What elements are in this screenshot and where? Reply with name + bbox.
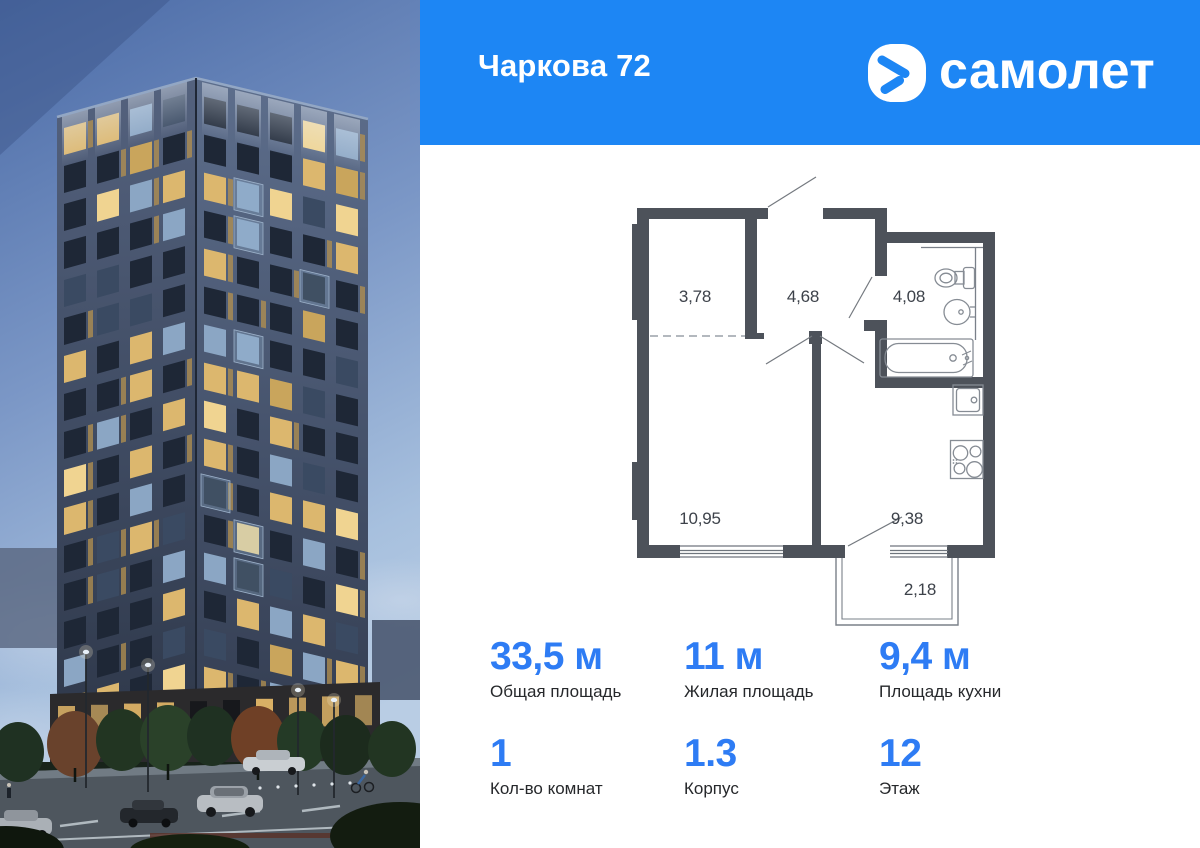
stat-label: Жилая площадь — [684, 682, 874, 702]
page: Чаркова 72 самолет — [0, 0, 1200, 848]
stat-value: 1 — [490, 731, 680, 777]
stat-label: Корпус — [684, 779, 874, 799]
stat-label: Этаж — [879, 779, 1069, 799]
header: Чаркова 72 самолет — [420, 0, 1200, 145]
samolet-logo-icon — [868, 44, 926, 102]
stat-label: Кол-во комнат — [490, 779, 680, 799]
room-area-label: 2,18 — [904, 580, 936, 599]
room-area-label: 3,78 — [679, 287, 711, 306]
stat-label: Общая площадь — [490, 682, 680, 702]
balcony-outline — [836, 558, 958, 625]
kitchen-fixtures — [951, 385, 984, 479]
page-title: Чаркова 72 — [478, 48, 651, 84]
stat-rooms-count: 1 Кол-во комнат — [490, 731, 680, 799]
stat-kitchen-area: 9,4 м Площадь кухни — [879, 634, 1069, 702]
stat-value: 11 м — [684, 634, 874, 680]
room-area-label: 4,68 — [787, 287, 819, 306]
brand-name: самолет — [939, 45, 1155, 97]
brand-logo: самолет — [868, 0, 1155, 145]
stat-value: 9,4 м — [879, 634, 1069, 680]
bathroom-fixtures — [880, 268, 975, 378]
stat-value: 33,5 м — [490, 634, 680, 680]
stat-label: Площадь кухни — [879, 682, 1069, 702]
room-area-label: 9,38 — [891, 509, 923, 528]
floor-plan-walls — [632, 208, 995, 558]
stat-floor-number: 12 Этаж — [879, 731, 1069, 799]
bathroom-shaft-lines — [921, 247, 983, 340]
room-area-label: 4,08 — [893, 287, 925, 306]
room-area-label: 10,95 — [679, 509, 721, 528]
stat-living-area: 11 м Жилая площадь — [684, 634, 874, 702]
building-photo — [0, 0, 420, 848]
stat-building-number: 1.3 Корпус — [684, 731, 874, 799]
stat-value: 1.3 — [684, 731, 874, 777]
floor-plan: 3,78 4,68 4,08 10,95 9,38 2,18 — [600, 160, 1020, 650]
stat-total-area: 33,5 м Общая площадь — [490, 634, 680, 702]
stat-value: 12 — [879, 731, 1069, 777]
pedestrian — [7, 783, 11, 798]
